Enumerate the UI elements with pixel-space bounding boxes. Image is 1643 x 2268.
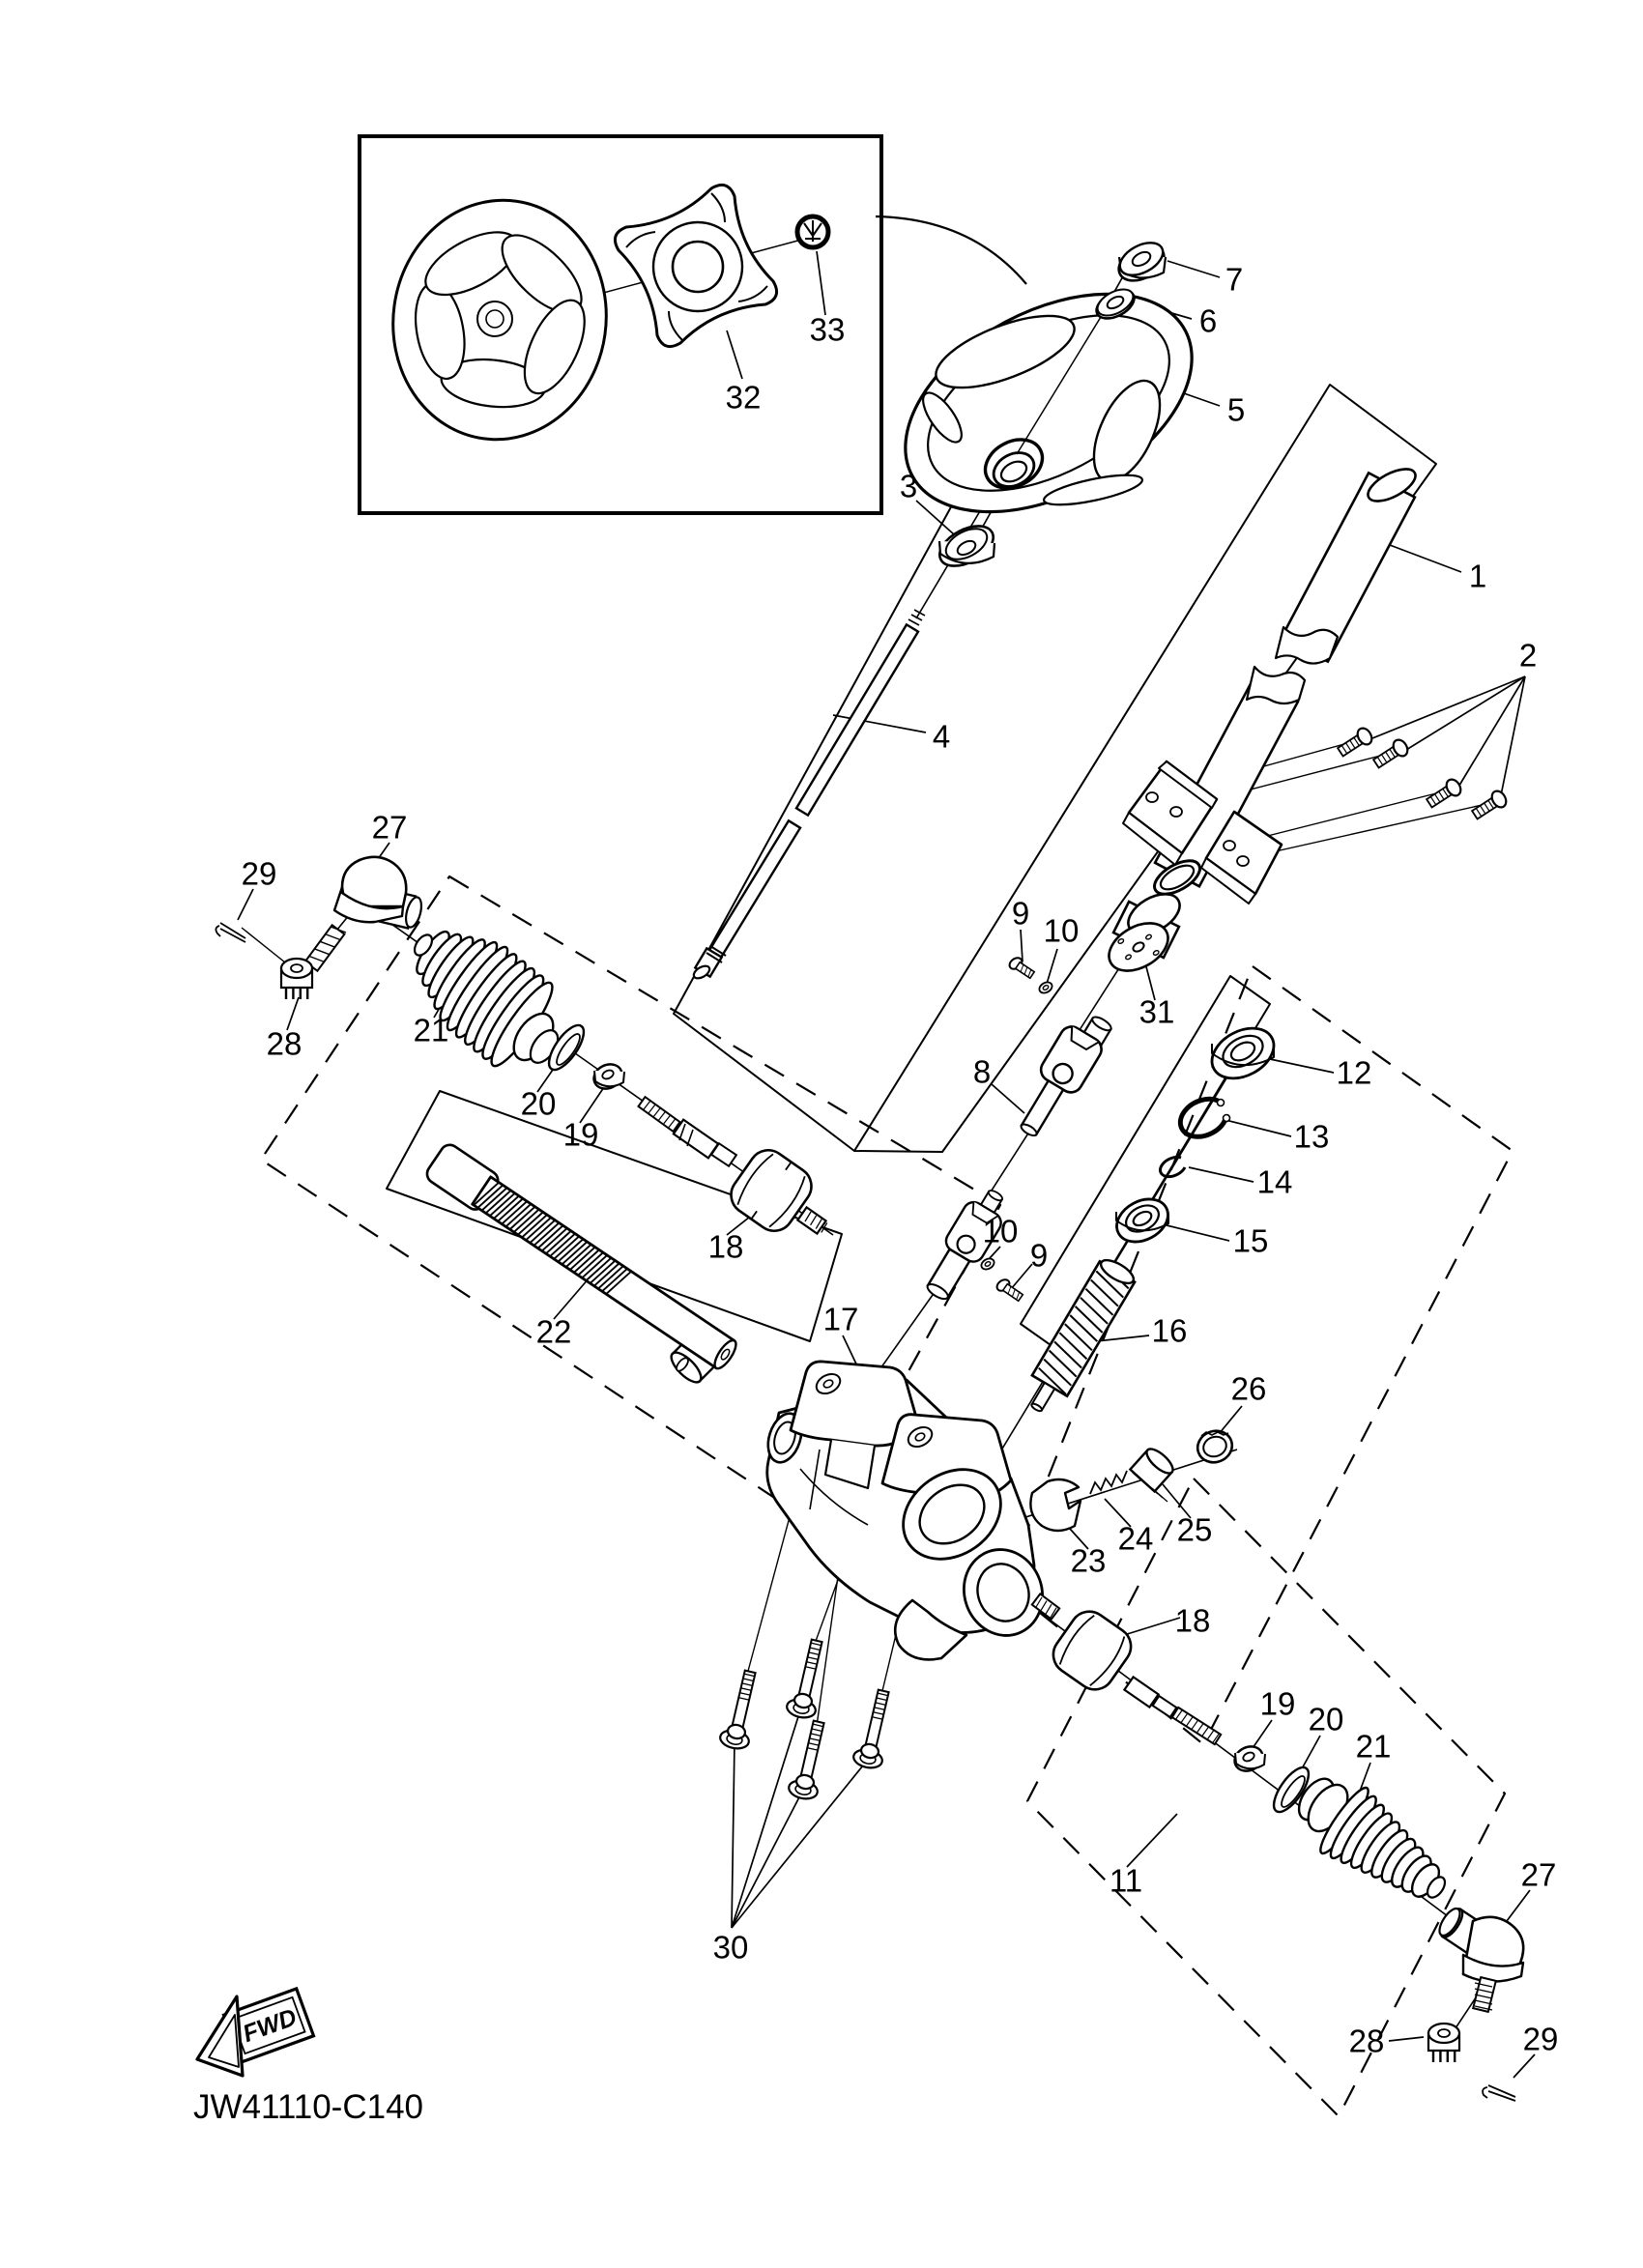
svg-text:JW41110-C140: JW41110-C140 — [193, 2088, 423, 2126]
svg-text:25: 25 — [1177, 1512, 1213, 1548]
svg-text:19: 19 — [563, 1117, 599, 1153]
svg-text:10: 10 — [1044, 913, 1080, 949]
svg-text:22: 22 — [536, 1314, 572, 1350]
svg-text:33: 33 — [810, 312, 846, 348]
svg-text:8: 8 — [973, 1054, 991, 1090]
svg-text:11: 11 — [1110, 1863, 1142, 1899]
svg-text:28: 28 — [267, 1026, 303, 1062]
svg-text:4: 4 — [933, 719, 950, 755]
svg-text:29: 29 — [242, 856, 277, 892]
svg-text:26: 26 — [1231, 1371, 1267, 1407]
svg-text:15: 15 — [1233, 1223, 1269, 1259]
svg-text:20: 20 — [1309, 1702, 1344, 1737]
svg-text:30: 30 — [713, 1930, 749, 1966]
svg-text:10: 10 — [983, 1214, 1019, 1249]
svg-text:9: 9 — [1012, 896, 1029, 932]
svg-text:27: 27 — [1521, 1857, 1557, 1893]
svg-text:7: 7 — [1225, 262, 1243, 298]
svg-text:24: 24 — [1118, 1521, 1154, 1557]
svg-text:29: 29 — [1523, 2022, 1559, 2057]
svg-text:12: 12 — [1337, 1055, 1372, 1091]
svg-text:31: 31 — [1139, 994, 1175, 1030]
svg-text:3: 3 — [900, 469, 917, 504]
svg-text:1: 1 — [1469, 559, 1486, 594]
svg-text:32: 32 — [726, 380, 762, 416]
svg-text:28: 28 — [1349, 2024, 1385, 2059]
svg-text:14: 14 — [1257, 1164, 1293, 1200]
svg-text:19: 19 — [1260, 1686, 1296, 1722]
svg-text:20: 20 — [521, 1086, 557, 1122]
svg-text:23: 23 — [1071, 1543, 1107, 1579]
svg-text:5: 5 — [1227, 392, 1245, 428]
svg-text:9: 9 — [1030, 1238, 1048, 1274]
svg-text:21: 21 — [414, 1013, 449, 1048]
svg-text:18: 18 — [708, 1229, 744, 1265]
svg-text:13: 13 — [1294, 1119, 1330, 1155]
svg-text:18: 18 — [1175, 1603, 1211, 1639]
svg-text:2: 2 — [1519, 638, 1537, 674]
svg-text:27: 27 — [372, 810, 408, 846]
svg-text:21: 21 — [1356, 1729, 1392, 1765]
svg-text:6: 6 — [1199, 303, 1217, 339]
svg-text:16: 16 — [1152, 1313, 1188, 1349]
svg-text:17: 17 — [823, 1302, 859, 1337]
